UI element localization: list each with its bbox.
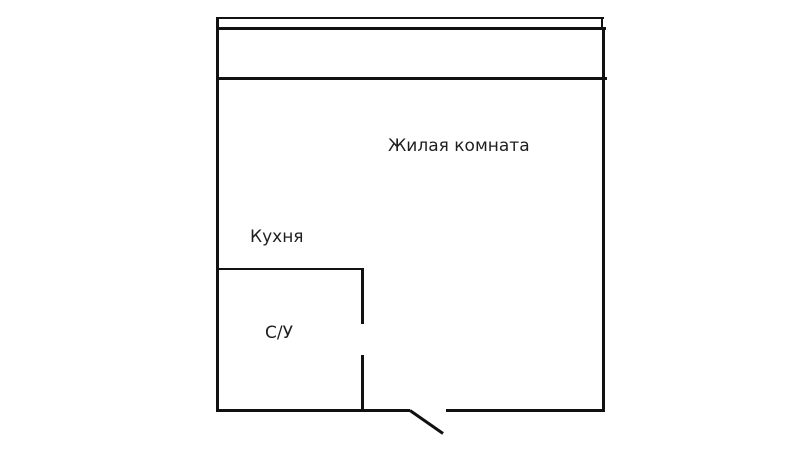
wall-bathroom-right-upper — [361, 268, 364, 324]
bathroom-label: С/У — [265, 323, 293, 343]
living-room-label: Жилая комната — [388, 136, 530, 156]
wall-bathroom-right-lower — [361, 355, 364, 411]
door-leaf-line — [410, 411, 443, 434]
wall-outer-top — [216, 27, 606, 30]
wall-bottom-right-segment — [446, 409, 605, 412]
wall-bottom-left-segment — [216, 409, 410, 412]
entry-door-swing — [0, 0, 800, 450]
wall-outer-right — [602, 27, 605, 412]
window-strip-top-line — [216, 17, 604, 19]
floor-plan: Жилая комната Кухня С/У — [0, 0, 800, 450]
window-strip-right-edge — [601, 17, 603, 30]
wall-band-divider — [216, 77, 607, 80]
wall-bathroom-top — [216, 268, 363, 270]
kitchen-label: Кухня — [250, 227, 304, 247]
